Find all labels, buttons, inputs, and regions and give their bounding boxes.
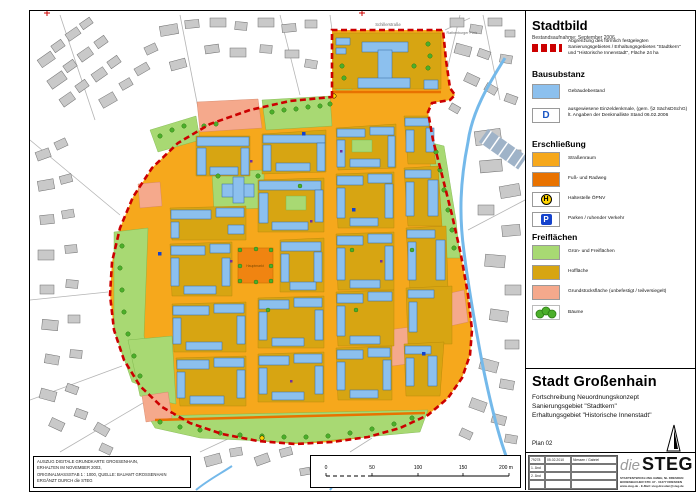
boundary-label: Abgrenzung des förmlich festgelegten San… xyxy=(568,39,690,58)
street-swatch xyxy=(532,152,560,167)
scale-tick-label: 50 xyxy=(369,465,375,471)
plan-number: Plan 02 xyxy=(532,441,552,447)
scale-tick-label: 150 xyxy=(459,465,468,471)
revision-cell xyxy=(545,472,571,480)
steg-logo: die STEG STADTENTWICKLUNG GMBH, NL DRESD… xyxy=(620,454,694,488)
bus-stop-letter: H xyxy=(543,196,548,203)
monument-icon: D xyxy=(532,108,560,123)
legend-panel: Stadtbild Bestandsaufnahme: September 20… xyxy=(526,11,695,490)
building-swatch xyxy=(532,84,560,99)
revision-date: 05.02.2010 xyxy=(545,456,571,464)
plot-swatch xyxy=(532,285,560,300)
title-line: Fortschreibung Neuordnungskonzept xyxy=(532,394,639,401)
place-label-rathenburger-platz: Rathenburger Platz xyxy=(447,31,478,35)
parking-letter: P xyxy=(543,215,548,224)
source-line: ERGÄNZT DURCH die STEG xyxy=(37,478,187,484)
section-freiflaechen: Freiflächen xyxy=(532,232,577,242)
registration-crosses xyxy=(44,11,365,16)
monument-label: ausgewiesene Einzeldenkmale, (gem. §2 Sä… xyxy=(568,107,690,119)
revision-cell xyxy=(571,464,617,472)
map-source-box: AUSZUG DIGITALE GRUNDKARTE GROSSENHAIN, … xyxy=(33,456,191,488)
green-label: Grün- und Freiflächen xyxy=(568,249,690,255)
scale-tick-label: 0 xyxy=(325,465,328,471)
scale-tick-label: 100 xyxy=(414,465,423,471)
boundary-swatch xyxy=(532,44,562,52)
trees-label: Bäume xyxy=(568,310,690,316)
revision-name: Niessen / Gabriel xyxy=(571,456,617,464)
scale-tick-label: 200 m xyxy=(499,465,513,471)
street-label: Straßenraum xyxy=(568,156,690,162)
title-block-divider xyxy=(526,368,695,369)
parking-icon: P xyxy=(532,212,560,227)
trees-icon xyxy=(532,305,560,320)
parking-label: Parken / ruhender Verkehr xyxy=(568,216,690,222)
revision-ref: 79278 xyxy=(529,456,545,464)
green-swatch xyxy=(532,245,560,260)
revision-row-label: 1. Änd xyxy=(529,464,545,472)
courtyard-label: Hoffläche xyxy=(568,269,690,275)
courtyard-swatch xyxy=(532,265,560,280)
logo-die: die xyxy=(620,457,640,474)
plot-label: Grundstücksfläche (unbefestigt / teilver… xyxy=(568,289,690,295)
source-line: ORIGINALMASSSTAB 1 : 1000, QUELLE: BAUAM… xyxy=(37,472,187,478)
building-label: Gebäudebestand xyxy=(568,89,690,95)
revision-row-label: 2. Änd xyxy=(529,472,545,480)
place-label-hauptmarkt: Hauptmarkt xyxy=(246,264,264,268)
footpath-swatch xyxy=(532,172,560,187)
street-label-schillerstrasse: Schillerstraße xyxy=(375,22,401,27)
bus-stop-icon: H xyxy=(532,192,560,207)
revision-table: 79278 05.02.2010 Niessen / Gabriel 1. Än… xyxy=(528,455,618,490)
revision-cell xyxy=(545,480,571,489)
city-title: Stadt Großenhain xyxy=(532,374,657,390)
footer-divider xyxy=(526,452,695,453)
title-line: Erhaltungsgebiet "Historische Innenstadt… xyxy=(532,412,652,419)
revision-cell xyxy=(571,480,617,489)
revision-cell xyxy=(571,472,617,480)
footpath-label: Fuß- und Radweg xyxy=(568,176,690,182)
city-map: Schillerstraße Rathenburger Platz Hauptm… xyxy=(30,11,525,491)
scale-bar: 0 50 100 150 200 m xyxy=(310,455,521,488)
revision-cell xyxy=(529,480,545,489)
plan-sheet: Schillerstraße Rathenburger Platz Hauptm… xyxy=(0,0,700,495)
bus-stop-label: Haltestelle ÖPNV xyxy=(568,196,690,202)
revision-cell xyxy=(545,464,571,472)
title-line: Sanierungsgebiet "Stadtkern" xyxy=(532,403,617,410)
section-erschliessung: Erschließung xyxy=(532,139,586,149)
north-arrow-icon xyxy=(664,423,682,453)
legend-title: Stadtbild xyxy=(532,18,588,33)
section-bausubstanz: Bausubstanz xyxy=(532,69,585,79)
monument-letter: D xyxy=(542,110,549,121)
logo-steg: STEG xyxy=(642,454,693,475)
logo-address-line: www.steg.de · E-Mail: steg.dresden@steg.… xyxy=(620,484,694,488)
